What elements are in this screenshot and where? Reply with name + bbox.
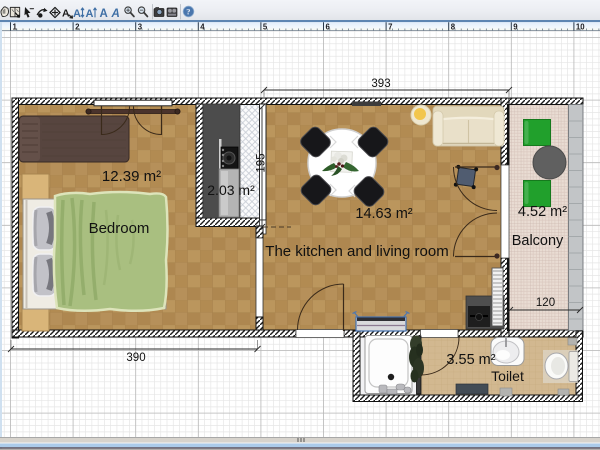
svg-text:393: 393 [371, 78, 390, 90]
svg-text:Bedroom: Bedroom [89, 220, 150, 237]
svg-text:2: 2 [75, 22, 80, 31]
svg-text:A: A [86, 8, 94, 20]
svg-text:6: 6 [326, 22, 331, 31]
svg-text:195: 195 [256, 153, 268, 172]
svg-text:3: 3 [138, 22, 143, 31]
svg-text:14.63 m²: 14.63 m² [355, 206, 412, 222]
svg-text:?: ? [186, 7, 190, 17]
svg-text:2.03 m²: 2.03 m² [207, 182, 255, 198]
svg-text:120: 120 [536, 297, 555, 309]
svg-text:12.39 m²: 12.39 m² [102, 168, 161, 185]
svg-text:4.52 m²: 4.52 m² [518, 204, 567, 220]
svg-text:Balcony: Balcony [512, 233, 564, 249]
svg-text:A: A [62, 8, 70, 20]
svg-text:9: 9 [513, 22, 518, 31]
svg-text:Toilet: Toilet [491, 368, 524, 384]
svg-text:5: 5 [263, 22, 268, 31]
svg-text:A: A [111, 8, 120, 20]
svg-text:The kitchen and living room: The kitchen and living room [265, 243, 448, 260]
svg-text:A: A [73, 8, 81, 20]
svg-text:4: 4 [200, 22, 205, 31]
svg-text:10: 10 [576, 22, 585, 31]
svg-text:390: 390 [126, 352, 145, 364]
svg-text:A: A [100, 8, 108, 20]
svg-text:8: 8 [451, 22, 456, 31]
svg-text:7: 7 [388, 22, 392, 31]
svg-text:1: 1 [13, 22, 18, 31]
svg-text:3.55 m²: 3.55 m² [446, 352, 495, 368]
